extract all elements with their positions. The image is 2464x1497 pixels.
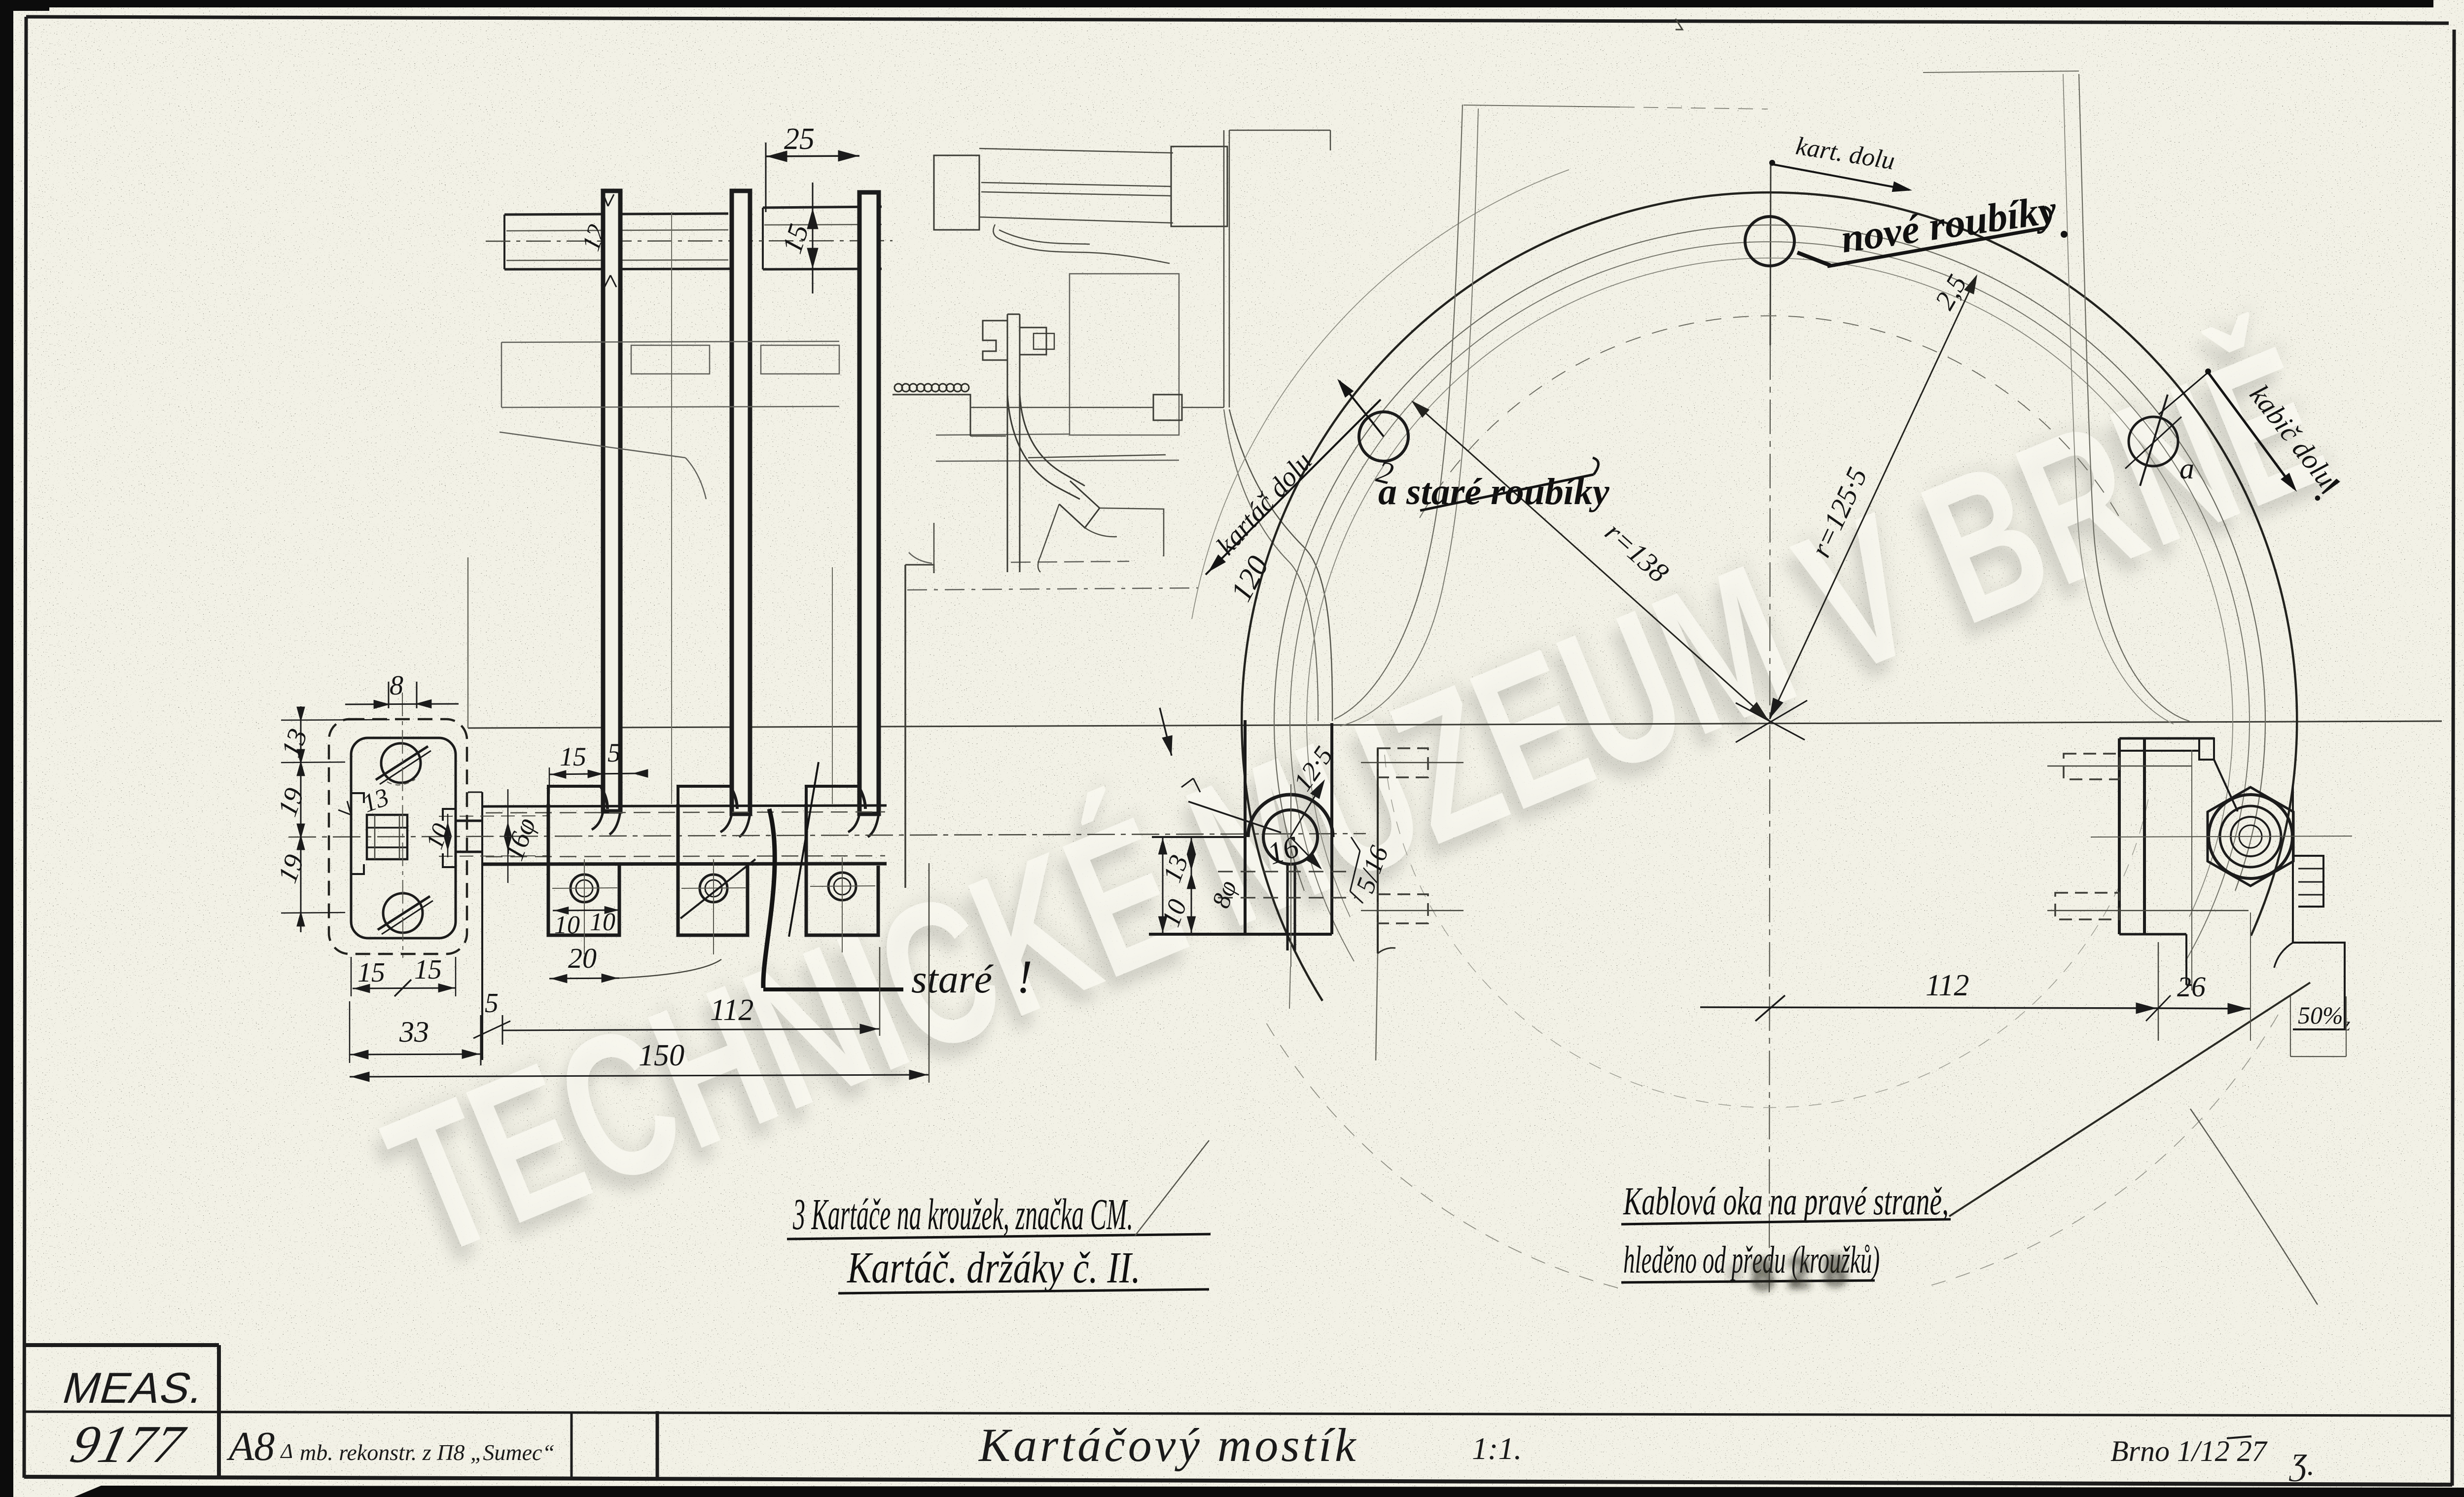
svg-text:1:1.: 1:1. — [1472, 1431, 1522, 1466]
svg-text:3 Kartáče na kroužek, značka C: 3 Kartáče na kroužek, značka CM. — [792, 1190, 1133, 1239]
svg-text:25: 25 — [784, 122, 815, 156]
svg-text:20: 20 — [568, 942, 597, 974]
svg-text:15: 15 — [414, 954, 442, 985]
svg-text:10: 10 — [590, 908, 615, 936]
svg-text:8: 8 — [390, 670, 403, 701]
svg-text:Ʒ.: Ʒ. — [2289, 1448, 2315, 1482]
svg-text:9177: 9177 — [65, 1414, 191, 1473]
svg-text:10: 10 — [554, 911, 580, 939]
svg-text:15: 15 — [560, 742, 586, 771]
svg-text:MEAS.: MEAS. — [57, 1364, 211, 1413]
svg-text:a: a — [2179, 452, 2194, 485]
svg-text:112: 112 — [710, 993, 753, 1027]
svg-text:828: 828 — [1750, 1246, 1861, 1299]
svg-text:Brno 1/12 27: Brno 1/12 27 — [2110, 1435, 2268, 1467]
svg-text:15: 15 — [357, 957, 385, 988]
svg-text:150: 150 — [639, 1039, 684, 1072]
svg-text:33: 33 — [399, 1016, 429, 1048]
svg-text:Kartáčový mostík: Kartáčový mostík — [978, 1419, 1359, 1471]
svg-text:112: 112 — [1926, 969, 1969, 1002]
svg-text:=: = — [1726, 1256, 1743, 1289]
svg-text:Kablová oka na pravé straně,: Kablová oka na pravé straně, — [1623, 1180, 1949, 1223]
svg-text:5: 5 — [607, 738, 621, 767]
svg-text:5: 5 — [485, 988, 499, 1019]
svg-text:Kartáč. držáky č. II.: Kartáč. držáky č. II. — [846, 1243, 1141, 1292]
